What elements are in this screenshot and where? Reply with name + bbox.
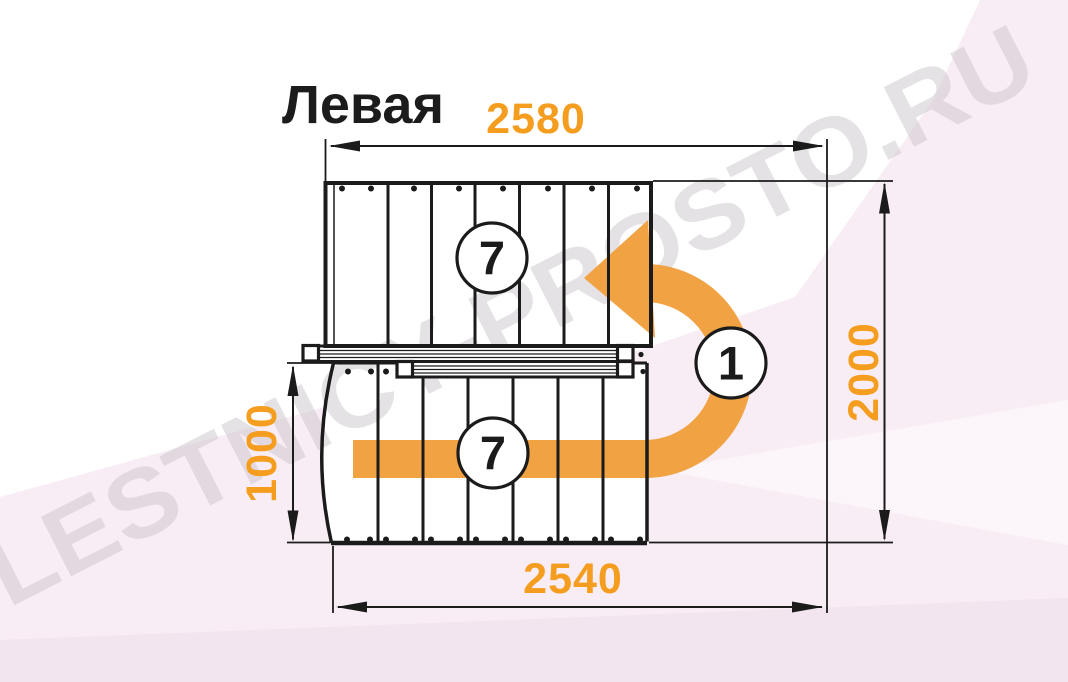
fastener-dot — [456, 186, 462, 192]
dimension-value-left: 1000 — [238, 403, 286, 503]
staircase-plan-diagram: LESTNICY-PROSTO.RU — [0, 0, 1068, 682]
fastener-dot — [428, 537, 434, 543]
page-title: Левая — [282, 75, 444, 135]
step-count-badge-lower: 7 — [458, 418, 528, 488]
dimension-value-top: 2580 — [486, 95, 586, 143]
fastener-dot — [608, 537, 614, 543]
fastener-dot — [383, 537, 389, 543]
fastener-dot — [344, 537, 350, 543]
fastener-dot — [383, 369, 389, 375]
fastener-dot — [473, 537, 479, 543]
fastener-dot — [500, 186, 506, 192]
landing-cap — [397, 362, 413, 378]
landing-cap — [303, 346, 319, 362]
fastener-dot — [412, 537, 418, 543]
fastener-dot — [637, 537, 643, 543]
fastener-dot — [339, 186, 345, 192]
fastener-dot — [634, 186, 640, 192]
fastener-dot — [502, 537, 508, 543]
fastener-dot — [592, 537, 598, 543]
fastener-dot — [640, 369, 645, 374]
fastener-dot — [545, 186, 551, 192]
staircase-plan-page: LESTNICY-PROSTO.RU — [0, 0, 1068, 682]
step-count-badge-turn: 1 — [696, 328, 766, 398]
dimension-value-bottom: 2540 — [523, 555, 623, 603]
dimension-value-right: 2000 — [840, 322, 888, 422]
fastener-dot — [457, 537, 463, 543]
lower-flight-step-count: 7 — [480, 427, 506, 480]
fastener-dot — [367, 537, 373, 543]
fastener-dot — [368, 369, 374, 375]
landing-cap — [618, 362, 634, 378]
fastener-dot — [368, 186, 374, 192]
fastener-dot — [638, 352, 643, 357]
upper-flight-step-count: 7 — [479, 232, 505, 285]
fastener-dot — [547, 537, 553, 543]
fastener-dot — [411, 186, 417, 192]
step-count-badge-upper: 7 — [457, 223, 527, 293]
fastener-dot — [563, 537, 569, 543]
fastener-dot — [518, 537, 524, 543]
turn-landing-count: 1 — [718, 337, 744, 390]
fastener-dot — [589, 186, 595, 192]
fastener-dot — [345, 369, 351, 375]
